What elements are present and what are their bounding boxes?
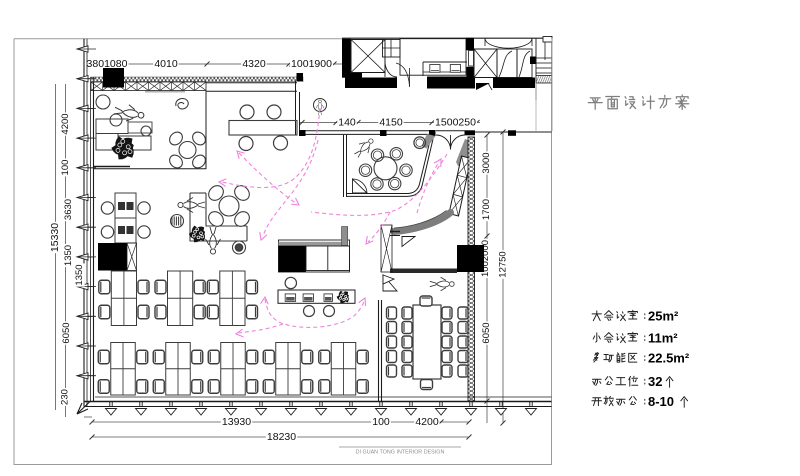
svg-text:4200: 4200 <box>60 113 71 134</box>
svg-text:18230: 18230 <box>267 431 296 443</box>
svg-text:22.5m²: 22.5m² <box>648 351 690 366</box>
svg-text:140: 140 <box>338 117 356 129</box>
svg-text:3630: 3630 <box>63 199 74 220</box>
svg-text:6050: 6050 <box>481 322 492 343</box>
svg-text:100: 100 <box>60 160 71 176</box>
svg-text:8-10: 8-10 <box>648 394 674 409</box>
svg-text:4320: 4320 <box>242 58 266 70</box>
svg-text:1500250: 1500250 <box>435 117 476 129</box>
svg-text:12750: 12750 <box>498 251 509 277</box>
svg-text:1350: 1350 <box>74 264 85 285</box>
svg-text:3000: 3000 <box>481 152 492 173</box>
svg-text:25m²: 25m² <box>648 309 679 324</box>
svg-text:1700: 1700 <box>481 199 492 220</box>
svg-text:4010: 4010 <box>154 58 178 70</box>
svg-text:13930: 13930 <box>222 416 251 428</box>
svg-text:1350: 1350 <box>63 245 74 266</box>
svg-text:6050: 6050 <box>61 322 72 343</box>
svg-text:4200: 4200 <box>415 416 439 428</box>
svg-text:15330: 15330 <box>49 223 61 252</box>
svg-text:DI GUAN TONG INTERIOR DESIGN: DI GUAN TONG INTERIOR DESIGN <box>356 450 445 456</box>
svg-text:11m²: 11m² <box>648 331 678 346</box>
svg-text:230: 230 <box>60 389 71 405</box>
svg-text:100: 100 <box>372 416 390 428</box>
svg-text:4150: 4150 <box>379 117 403 129</box>
svg-text:32: 32 <box>648 374 662 389</box>
svg-text:1001900: 1001900 <box>291 58 332 70</box>
